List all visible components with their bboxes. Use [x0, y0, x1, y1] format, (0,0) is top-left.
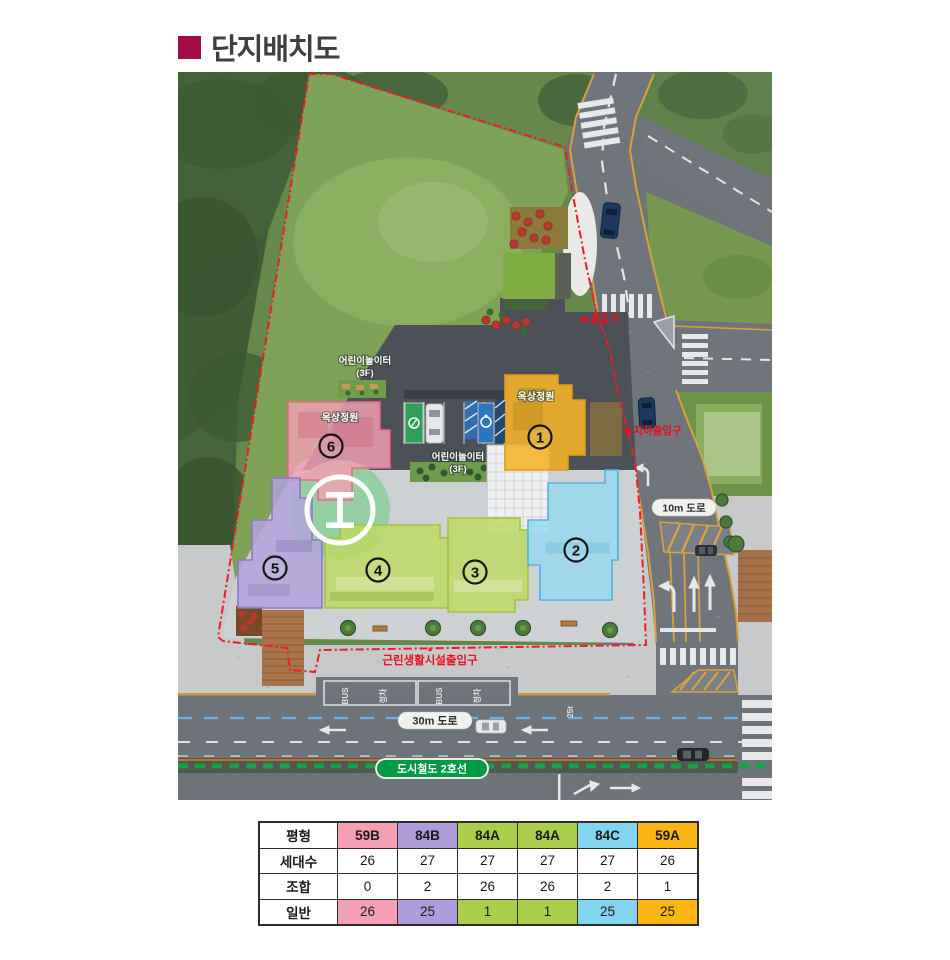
header-label: 평형: [259, 822, 338, 848]
planting-bed: [590, 402, 622, 456]
bus-marking-text: BUS: [435, 687, 444, 705]
type-59A: 59A: [638, 822, 699, 848]
roof-garden-b6-label: 옥상정원: [322, 411, 359, 424]
playground-top-label: 어린이놀이터: [339, 355, 391, 367]
svg-text:4: 4: [374, 563, 383, 580]
cell: 26: [518, 874, 578, 900]
playground-top-floor: (3F): [356, 368, 373, 379]
cell: 27: [458, 848, 518, 874]
unit-mix-table: 평형 59B 84B 84A 84A 84C 59A 세대수 26 27 27 …: [258, 821, 699, 926]
road-30m: [178, 695, 772, 800]
cell: 25: [578, 899, 638, 925]
svg-text:10m 도로: 10m 도로: [662, 503, 706, 515]
page-title: 단지배치도: [211, 26, 339, 68]
type-59B: 59B: [338, 822, 398, 848]
svg-text:30m 도로: 30m 도로: [412, 715, 457, 728]
parked-white-car: [426, 404, 443, 443]
row-label: 일반: [259, 899, 338, 925]
row-label: 세대수: [259, 848, 338, 874]
subway-line-badge: 도시철도 2호선: [376, 759, 488, 778]
cell: 25: [638, 899, 699, 925]
svg-text:1: 1: [536, 430, 544, 447]
building-number-6: 6: [320, 435, 343, 458]
cell: 1: [458, 899, 518, 925]
type-84C: 84C: [578, 822, 638, 848]
row-label: 조합: [259, 874, 338, 900]
road-30m-badge: 30m 도로: [398, 712, 472, 729]
cell: 2: [398, 874, 458, 900]
playground-mid-label: 어린이놀이터: [432, 451, 484, 463]
type-84A: 84A: [458, 822, 518, 848]
svg-text:3: 3: [471, 565, 479, 582]
cell: 2: [578, 874, 638, 900]
playground-mid-floor: (3F): [449, 464, 466, 475]
cell: 1: [518, 899, 578, 925]
building-number-2: 2: [565, 539, 588, 562]
cell: 25: [398, 899, 458, 925]
table-row-types: 평형 59B 84B 84A 84A 84C 59A: [259, 822, 698, 848]
table-row-union: 조합 0 2 26 26 2 1: [259, 874, 698, 900]
car-dark-mid: [638, 398, 656, 429]
entrance-label: ◀ 출입구: [579, 312, 619, 325]
svg-text:2: 2: [572, 543, 580, 560]
cell: 0: [338, 874, 398, 900]
car-dark-small: [695, 545, 717, 556]
cell: 27: [518, 848, 578, 874]
bench: [373, 626, 387, 631]
title-bullet-square: [178, 36, 201, 59]
cell: 27: [398, 848, 458, 874]
car-black-30m: [677, 748, 709, 761]
bus-stop-marking-text: 정차: [472, 688, 482, 703]
building-number-3: 3: [464, 561, 487, 584]
car-dark-top: [600, 202, 621, 239]
cell: 26: [638, 848, 699, 874]
car-white-30m: [476, 720, 506, 733]
cell: 26: [458, 874, 518, 900]
cell: 26: [338, 899, 398, 925]
building-number-5: 5: [264, 557, 287, 580]
building-number-4: 4: [367, 559, 390, 582]
type-84A: 84A: [518, 822, 578, 848]
building-number-1: 1: [529, 426, 552, 449]
cell: 1: [638, 874, 699, 900]
site-plan-svg: BUS 정차 BUS 정차 25t 6 1 5 4 3 2 어린이놀이터 (3F…: [178, 72, 772, 800]
shop-entrance-arrow: ▲: [427, 646, 434, 653]
page-header: 단지배치도: [178, 26, 339, 68]
cell: 27: [578, 848, 638, 874]
svg-text:도시철도 2호선: 도시철도 2호선: [397, 762, 467, 776]
table-row-households: 세대수 26 27 27 27 27 26: [259, 848, 698, 874]
shop-entrance-label: 근린생활시설출입구: [382, 653, 478, 667]
weight-limit-text: 25t: [566, 706, 575, 718]
bus-stop-marking-text: 정차: [378, 688, 388, 703]
svg-text:6: 6: [327, 439, 335, 456]
site-plan-map: BUS 정차 BUS 정차 25t 6 1 5 4 3 2 어린이놀이터 (3F…: [178, 72, 772, 800]
table-row-general: 일반 26 25 1 1 25 25: [259, 899, 698, 925]
road-10m-badge: 10m 도로: [652, 499, 716, 516]
svg-text:5: 5: [271, 561, 279, 578]
playground-top: [338, 380, 386, 398]
roof-garden-b1-label: 옥상정원: [518, 390, 555, 403]
cell: 26: [338, 848, 398, 874]
type-84B: 84B: [398, 822, 458, 848]
bench: [561, 621, 577, 626]
building-3: [448, 518, 528, 612]
underground-entrance-label: ◀ 지하출입구: [622, 424, 682, 437]
bus-marking-text: BUS: [341, 687, 350, 705]
